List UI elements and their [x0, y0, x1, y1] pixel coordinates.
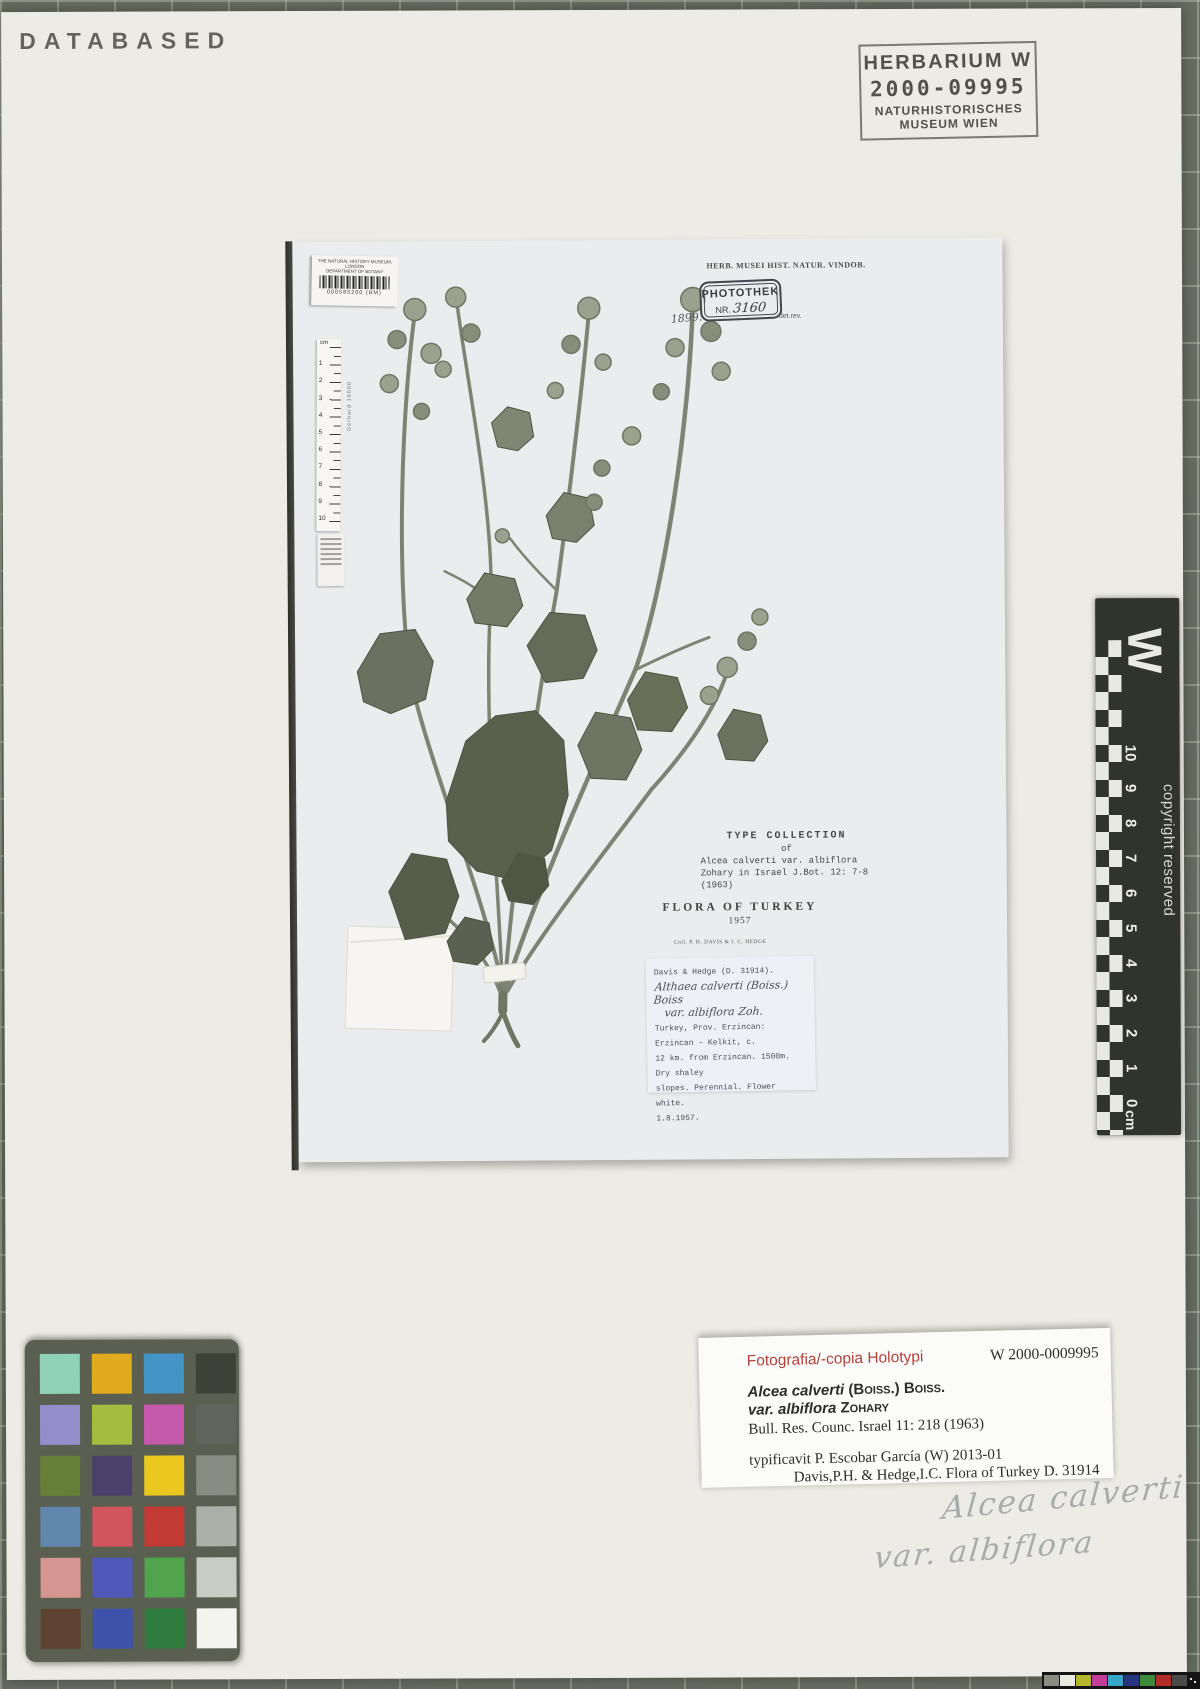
- photothek-nr-value: 3160: [733, 300, 768, 316]
- handwritten-year: 1899.: [670, 310, 702, 325]
- calibration-patch-1: [1044, 1675, 1059, 1686]
- calibration-strip: [1042, 1672, 1200, 1689]
- collection-label-locality1: Turkey, Prov. Erzincan: Erzincan - Kelki…: [655, 1019, 808, 1052]
- color-patch-r1c1: [40, 1354, 80, 1394]
- specimen-sheet: HERB. MUSEI HIST. NATUR. VINDOB. PHOTOTH…: [292, 237, 1008, 1162]
- color-patch-r4c2: [92, 1507, 132, 1547]
- collection-label-variety: var. albiflora Zoh.: [664, 1004, 807, 1020]
- bm-barcode-label: THE NATURAL HISTORY MUSEUM, LONDON DEPAR…: [311, 255, 398, 306]
- calibration-patch-6: [1124, 1675, 1139, 1686]
- label-herbar-number: W 2000-0009995: [990, 1344, 1099, 1365]
- herbarium-w-logo: W: [1116, 628, 1171, 674]
- flora-of-turkey-label: FLORA OF TURKEY 1957 Coll. P. H. DAVIS &…: [657, 901, 823, 946]
- scalebar-number: 1: [1123, 1064, 1140, 1072]
- type-collection-label: TYPE COLLECTION of Alcea calverti var. a…: [700, 830, 872, 891]
- color-patch-r2c4: [196, 1404, 236, 1444]
- ruler-brand: Gerhard 10000: [347, 381, 353, 431]
- photothek-title: PHOTOTHEK: [701, 286, 779, 301]
- scalebar-number: 6: [1122, 889, 1139, 897]
- color-patch-r6c4: [197, 1608, 237, 1648]
- scalebar-unit: cm: [1123, 1110, 1139, 1130]
- color-checker-grid: [25, 1339, 240, 1649]
- copyright-text: copyright reserved: [1160, 784, 1177, 916]
- type-collection-year: (1963): [701, 878, 873, 891]
- color-checker-card: [25, 1339, 240, 1662]
- color-patch-r2c1: [40, 1405, 80, 1445]
- scalebar-number: 4: [1122, 959, 1139, 967]
- determination-label: Fotografia/-copia Holotypi W 2000-000999…: [698, 1328, 1114, 1488]
- herbarium-stamp-number: 2000-09995: [861, 74, 1035, 102]
- collection-label-species: Althaea calverti (Boiss.) Boiss: [653, 978, 807, 1007]
- ruler-number: 5: [319, 429, 323, 436]
- color-patch-r3c4: [196, 1455, 236, 1495]
- color-patch-r6c2: [93, 1609, 133, 1649]
- ruler-ticks-major: [329, 347, 341, 525]
- flora-collector: Coll. P. H. DAVIS & I. C. HEDGE: [657, 939, 783, 946]
- ruler-number: 10: [318, 515, 325, 522]
- color-patch-r3c2: [92, 1456, 132, 1496]
- scalebar-number: 0: [1123, 1099, 1140, 1107]
- calibration-patch-4: [1092, 1675, 1107, 1686]
- scalebar-number: 3: [1123, 994, 1140, 1002]
- photothek-nr-label: NR.: [715, 305, 731, 316]
- color-patch-r6c1: [41, 1609, 81, 1649]
- ruler-number: 2: [319, 377, 323, 384]
- calibration-patch-3: [1076, 1675, 1091, 1686]
- handwritten-name-line2: var. albiflora: [873, 1525, 1096, 1576]
- registration-marks-icon: [1188, 1675, 1198, 1686]
- ruler-number: 1: [319, 360, 323, 367]
- color-patch-r3c1: [40, 1456, 80, 1496]
- color-patch-r5c1: [40, 1558, 80, 1598]
- calibration-patch-7: [1140, 1675, 1155, 1686]
- color-patch-r1c2: [92, 1354, 132, 1394]
- color-patch-r5c2: [92, 1558, 132, 1598]
- scalebar-number: 2: [1123, 1029, 1140, 1037]
- photo-background: DATABASED HERBARIUM W 2000-09995 NATURHI…: [0, 0, 1200, 1689]
- bm-label-line2: DEPARTMENT OF BOTANY: [312, 268, 398, 275]
- ruler-number: 7: [319, 463, 323, 470]
- calibration-patch-2: [1060, 1675, 1075, 1686]
- photothek-number-line: NR. 3160: [702, 300, 781, 318]
- ruler-number: 6: [319, 446, 323, 453]
- collection-label-date: 1.8.1957.: [656, 1109, 808, 1127]
- scalebar-number: 5: [1122, 924, 1139, 932]
- scalebar-number: 9: [1122, 784, 1139, 792]
- color-patch-r3c3: [144, 1455, 184, 1495]
- scalebar-checker: [1095, 640, 1123, 1135]
- color-patch-r5c3: [144, 1557, 184, 1597]
- flora-year: 1957: [657, 916, 823, 927]
- scale-bar-body: W copyright reserved 109876543210 cm: [1095, 598, 1181, 1135]
- calibration-patch-5: [1108, 1675, 1123, 1686]
- label-red-title: Fotografia/-copia Holotypi: [747, 1348, 924, 1370]
- sheet-header: HERB. MUSEI HIST. NATUR. VINDOB.: [706, 260, 865, 270]
- calibration-patch-9: [1172, 1675, 1187, 1686]
- collection-label: Davis & Hedge (D. 31914). Althaea calver…: [646, 956, 816, 1093]
- collection-label-habit: slopes. Perennial. Flower white.: [656, 1079, 809, 1112]
- color-patch-r2c3: [144, 1404, 184, 1444]
- bm-label-number: 000585200 (BM): [311, 289, 397, 296]
- color-patch-r2c2: [92, 1405, 132, 1445]
- flora-title: FLORA OF TURKEY: [657, 901, 823, 914]
- color-patch-r1c3: [144, 1353, 184, 1393]
- databased-stamp: DATABASED: [19, 27, 232, 55]
- color-patch-r4c3: [144, 1506, 184, 1546]
- ruler-number: 8: [318, 481, 322, 488]
- color-patch-r4c1: [40, 1507, 80, 1547]
- sheet-ruler: cm 12345678910 Gerhard 10000: [316, 339, 341, 531]
- label-taxon-name: Alcea calverti (Boiss.) Boiss. var. albi…: [747, 1375, 1100, 1420]
- museum-imprint-label: [317, 534, 344, 586]
- photothek-stamp: PHOTOTHEK NR. 3160: [699, 278, 783, 321]
- calibration-patch-8: [1156, 1675, 1171, 1686]
- specimen-envelope: [344, 925, 454, 1031]
- ruler-unit: cm: [320, 340, 328, 346]
- label-variety-author: Zohary: [840, 1398, 889, 1416]
- type-collection-citation: Zohary in Israel J.Bot. 12: 7-8: [701, 866, 873, 879]
- color-patch-r5c4: [196, 1557, 236, 1597]
- scalebar-number: 7: [1122, 854, 1139, 862]
- label-species-author: (Boiss.) Boiss.: [848, 1379, 945, 1398]
- scale-bar: W copyright reserved 109876543210 cm: [1095, 598, 1181, 1135]
- ruler-number: 9: [318, 498, 322, 505]
- herbarium-stamp: HERBARIUM W 2000-09995 NATURHISTORISCHES…: [858, 41, 1038, 141]
- collection-label-locality2: 12 km. from Erzincan. 1500m. Dry shaley: [655, 1049, 808, 1082]
- color-patch-r4c4: [196, 1506, 236, 1546]
- herbarium-stamp-title: HERBARIUM W: [861, 49, 1035, 76]
- ruler-number: 4: [319, 412, 323, 419]
- barcode: [319, 275, 389, 289]
- ruler-number: 3: [319, 395, 323, 402]
- label-variety: var. albiflora: [748, 1400, 837, 1419]
- color-patch-r1c4: [196, 1353, 236, 1393]
- scalebar-numbers: 109876543210: [1179, 598, 1181, 1135]
- det-rev-note: det.rev.: [779, 313, 802, 320]
- label-species: Alcea calverti: [747, 1381, 844, 1400]
- mount-board: DATABASED HERBARIUM W 2000-09995 NATURHI…: [1, 8, 1187, 1680]
- color-patch-r6c3: [145, 1608, 185, 1648]
- scalebar-number: 8: [1122, 819, 1139, 827]
- scalebar-number: 10: [1122, 745, 1139, 762]
